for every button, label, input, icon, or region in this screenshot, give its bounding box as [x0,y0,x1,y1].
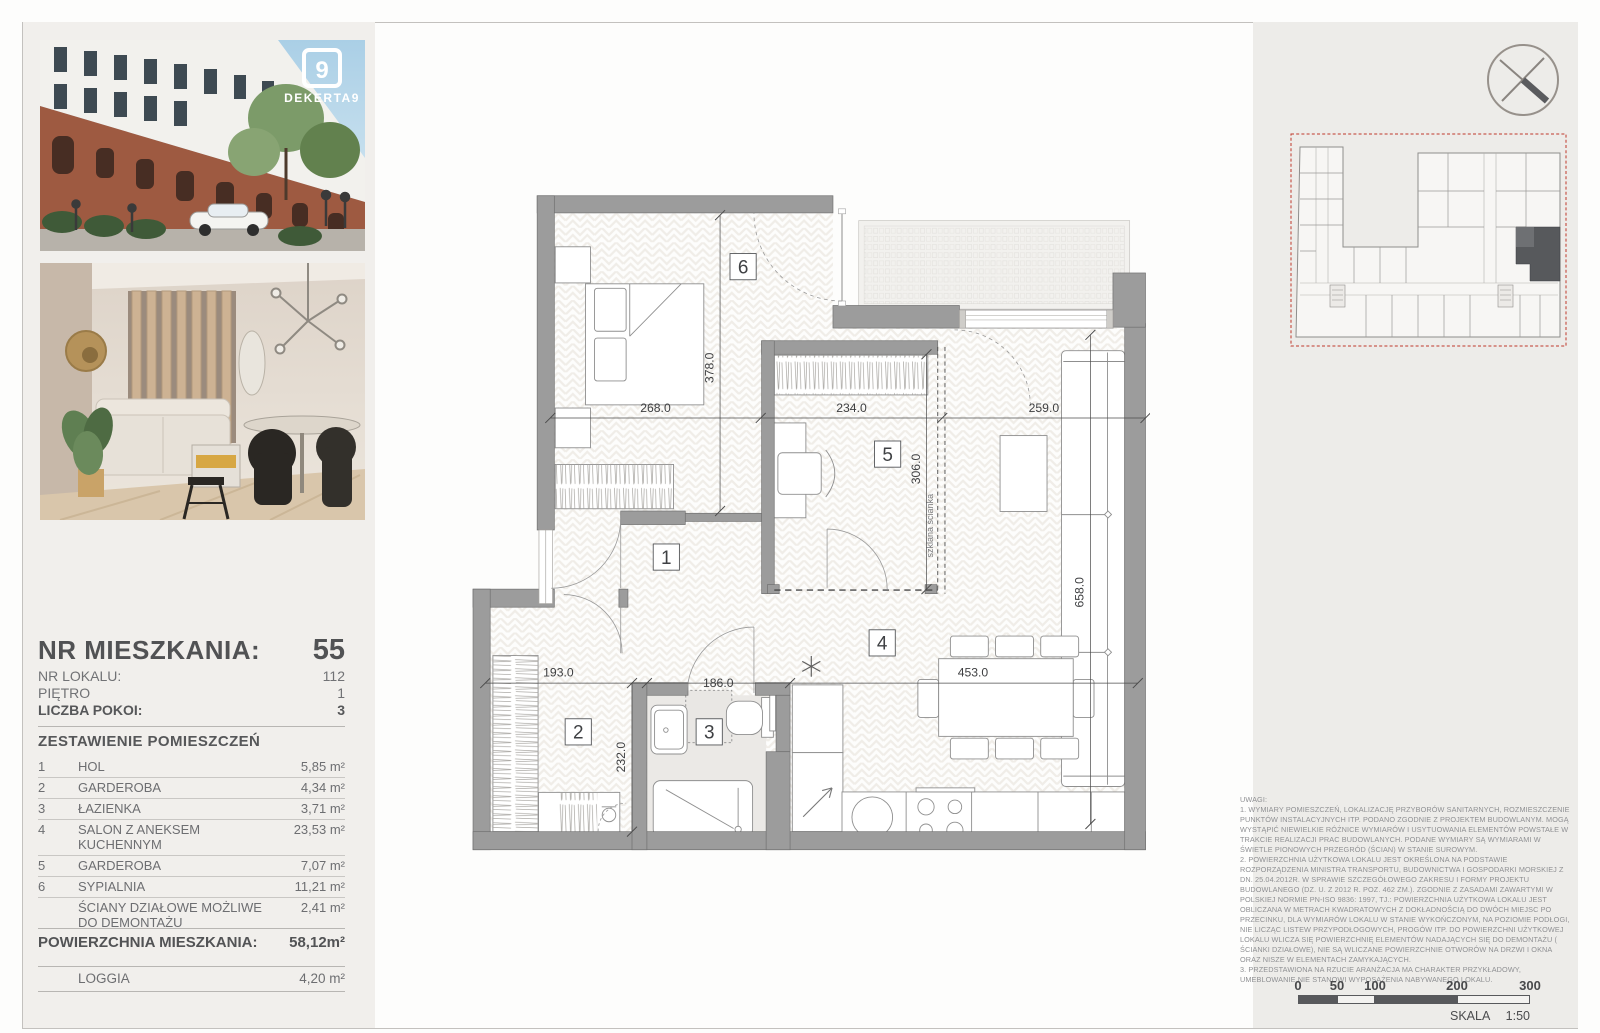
nr-mieszkania-label: NR MIESZKANIA: [38,635,260,666]
dining-chair [950,636,988,657]
room-area: 3,71 m² [273,801,345,816]
dim-186: 186.0 [703,676,734,690]
hob-back [916,788,975,792]
floorplan-sheet: { "header": { "brand": "DEKERTA9", "logo… [0,0,1600,1033]
note-item: 2. POWIERZCHNIA UŻYTKOWA LOKALU JEST OKR… [1240,855,1573,965]
scale-tick-200: 200 [1446,978,1468,993]
scale-segment [1457,995,1530,1004]
hob-burner [918,799,934,815]
room-name: SALON Z ANEKSEM KUCHENNYM [78,822,273,852]
table-row: 3 ŁAZIENKA 3,71 m² [38,799,345,820]
dim-378: 378.0 [703,352,717,383]
dining-chair [996,636,1034,657]
room-no: 2 [38,780,78,795]
divider [38,928,345,929]
logo-9: 9 [315,57,328,84]
room-box-5: 5 [875,441,901,467]
divider [38,966,345,967]
svg-text:1: 1 [661,548,672,569]
dim-232: 232.0 [614,742,628,773]
room-box-4: 4 [869,630,895,656]
dim-306: 306.0 [909,454,923,485]
room-box-1: 1 [653,544,679,570]
dining-chair [950,738,988,759]
toilet-bowl [726,701,762,734]
loggia-label: LOGGIA [38,971,273,986]
dining-chair [1073,679,1094,717]
room-no: 6 [38,879,78,894]
table-row: 1 HOL 5,85 m² [38,757,345,778]
photo-interior [40,263,365,520]
sink-drain [664,728,669,733]
dining-chair [1041,636,1079,657]
room-box-6: 6 [730,254,756,280]
svg-text:2: 2 [573,723,584,744]
hall-window [539,530,553,604]
balcony-window [959,310,1113,328]
room-no [38,900,78,930]
photo-building-exterior: 9 DEKERTA9 [40,40,365,251]
frame-bottom-line [22,1028,1578,1029]
rooms-table: 1 HOL 5,85 m² 2 GARDEROBA 4,34 m² 3 ŁAZI… [38,757,345,933]
total-value: 58,12m² [289,934,345,951]
kitchen-fridge [792,753,843,832]
nightstand [555,408,590,448]
pietro-label: PIĘTRO [38,685,90,701]
radiator [770,695,776,731]
scale-segment [1298,995,1337,1004]
table-row: 6 SYPIALNIA 11,21 m² [38,877,345,898]
room-no: 1 [38,759,78,774]
room-name: GARDEROBA [78,780,273,795]
pillow [595,288,627,331]
mirror [239,331,265,395]
scale-tick-100: 100 [1364,978,1386,993]
dim-259: 259.0 [1029,401,1060,415]
svg-text:4: 4 [877,634,888,655]
room-no: 4 [38,822,78,852]
skala-value: 1:50 [1506,1009,1530,1023]
liczba-pokoi-label: LICZBA POKOI: [38,702,142,718]
svg-text:3: 3 [704,723,715,744]
note-item: 1. WYMIARY POMIESZCZEŃ, LOKALIZACJĘ PRZY… [1240,805,1573,855]
scale-bar [1298,995,1530,1004]
scale-tick-50: 50 [1330,978,1344,993]
divider [38,726,345,727]
room-name: SYPIALNIA [78,879,273,894]
nr-lokalu-value: 112 [323,668,345,684]
room-name: GARDEROBA [78,858,273,873]
pietro-row: PIĘTRO 1 [38,685,345,701]
nr-lokalu-label: NR LOKALU: [38,668,121,684]
dim-193: 193.0 [543,666,574,680]
scale-tick-300: 300 [1519,978,1541,993]
loggia [859,221,1130,310]
logo-brand: DEKERTA9 [284,91,360,105]
room-box-3: 3 [696,719,722,745]
scale-segment [1375,995,1457,1004]
nr-lokalu-row: NR LOKALU: 112 [38,668,345,684]
loggia-row: LOGGIA 4,20 m² [38,971,345,986]
north-arrow-icon [1478,38,1568,123]
coffee-table [1000,436,1047,512]
rooms-title: ZESTAWIENIE POMIESZCZEŃ [38,733,260,750]
table-row: 5 GARDEROBA 7,07 m² [38,856,345,877]
nightstand [555,247,590,283]
divider [38,991,345,992]
dining-chair [918,679,939,717]
room-name: HOL [78,759,273,774]
room-area: 2,41 m² [273,900,345,930]
hob-burner [948,800,962,814]
total-label: POWIERZCHNIA MIESZKANIA: [38,934,257,951]
notes-block: UWAGI: 1. WYMIARY POMIESZCZEŃ, LOKALIZAC… [1240,795,1573,985]
dining-chair [996,738,1034,759]
pillow [595,338,627,381]
building-overview-plan [1288,131,1569,349]
room-area: 5,85 m² [273,759,345,774]
dim-234: 234.0 [836,401,867,415]
kitchen-tall-unit [792,685,843,753]
bath-sink [651,705,687,754]
room-no: 5 [38,858,78,873]
liczba-pokoi-row: LICZBA POKOI: 3 [38,702,345,718]
liczba-pokoi-value: 3 [337,702,345,718]
table-row: 2 GARDEROBA 4,34 m² [38,778,345,799]
dining-chair [1041,738,1079,759]
highlighted-unit-part [1516,227,1534,247]
total-area-row: POWIERZCHNIA MIESZKANIA: 58,12m² [38,934,345,951]
nr-mieszkania-value: 55 [313,634,345,667]
floor-plan: szklana ścianka 26 [450,170,1150,852]
room-area: 11,21 m² [273,879,345,894]
pietro-value: 1 [337,685,345,701]
room-area: 7,07 m² [273,858,345,873]
scale-segment [1337,995,1375,1004]
room-area: 23,53 m² [273,822,345,852]
svg-text:6: 6 [738,257,749,278]
desk-chair [778,453,821,495]
room-name: ŚCIANY DZIAŁOWE MOŻLIWE DO DEMONTAŻU [78,900,273,930]
table-row: 4 SALON Z ANEKSEM KUCHENNYM 23,53 m² [38,820,345,856]
scale-tick-0: 0 [1294,978,1301,993]
room-box-2: 2 [565,719,591,745]
room-area: 4,34 m² [273,780,345,795]
gold-lamp-inner [82,347,98,363]
room-name: ŁAZIENKA [78,801,273,816]
room-no: 3 [38,801,78,816]
nr-mieszkania-row: NR MIESZKANIA: 55 [38,634,345,667]
skala-label: SKALA [1450,1009,1490,1023]
dim-658: 658.0 [1073,577,1087,608]
notes-title: UWAGI: [1240,795,1573,805]
loggia-value: 4,20 m² [273,971,345,986]
dim-453: 453.0 [958,666,989,680]
svg-text:5: 5 [882,445,893,466]
dim-268: 268.0 [640,401,671,415]
